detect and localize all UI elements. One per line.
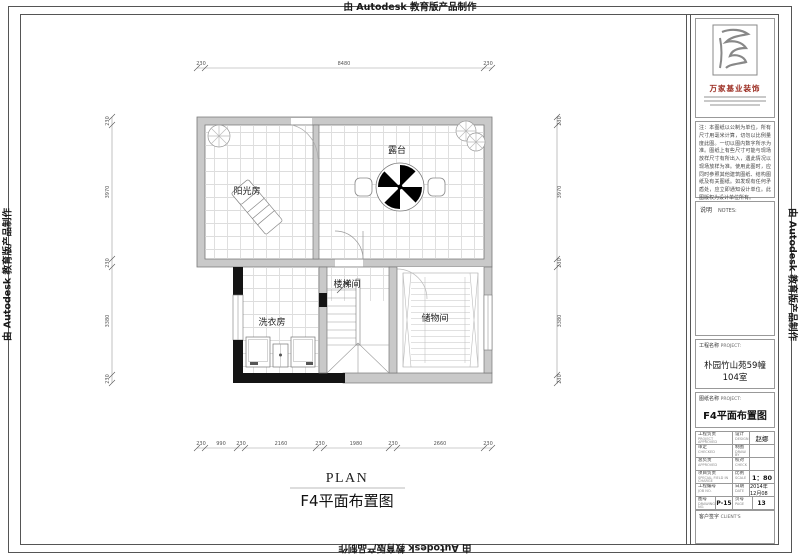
dimension-bottom: 230 990 230 2160 230 1980 230 2660 230 <box>194 441 495 451</box>
plan-title-en: PLAN <box>326 471 369 486</box>
logo-fineprint-line <box>704 96 766 98</box>
laundry-stair-wall-black <box>319 293 327 307</box>
table-row: 总负责APPROVED 校对CHECK <box>696 458 774 471</box>
general-notes-box: 注：本图纸以公制为单位，所有尺寸用毫米计算，切勿以比例量度此图。一切以图内数字所… <box>695 121 775 198</box>
project-label-en: PROJECT: <box>721 344 741 349</box>
cell-sublabel: PROJECT APPROVED <box>698 438 731 445</box>
svg-text:3970: 3970 <box>105 186 111 199</box>
room-label-sunroom: 阳光房 <box>233 185 260 197</box>
cell-sublabel: DRAWING NO. <box>698 503 714 510</box>
terrace-chair <box>428 178 445 196</box>
svg-text:230: 230 <box>388 441 398 447</box>
cell-sublabel: SPECIAL FIELD IN CHARGE <box>698 477 731 484</box>
drawing-number-value: P-15 <box>716 497 733 510</box>
client-label-cn: 客户签字 <box>699 514 719 520</box>
client-label-en: CLIENT'S <box>721 515 741 520</box>
stair-door-opening <box>335 260 363 267</box>
table-row: 图号DRAWING NO. P-15 页号PAGE 13 <box>696 497 774 510</box>
table-row: 工程编号JOB NO. 日期DATE 2014年12月08 <box>696 484 774 497</box>
svg-text:8480: 8480 <box>338 61 351 67</box>
plan-title-cn: F4平面布置图 <box>300 492 393 510</box>
svg-text:230: 230 <box>315 441 325 447</box>
project-label-cn: 工程名称 <box>699 343 719 349</box>
checker-value <box>750 458 774 470</box>
tree-icon <box>208 125 230 147</box>
cell-sublabel: CHECK <box>735 464 748 468</box>
drawing-sheet: 由 Autodesk 教育版产品制作 由 Autodesk 教育版产品制作 由 … <box>0 0 800 559</box>
floor-plan-svg: 露台 阳光房 楼梯间 洗衣房 储物间 230 8480 230 230 3970… <box>85 55 595 520</box>
draftsman-value <box>750 445 774 457</box>
date-value: 2014年12月08 <box>750 484 774 496</box>
autodesk-watermark-bottom: 由 Autodesk 教育版产品制作 <box>305 541 505 554</box>
svg-text:990: 990 <box>216 441 226 447</box>
svg-text:230: 230 <box>196 441 206 447</box>
cell-sublabel: SCALE <box>735 477 748 481</box>
room-label-terrace: 露台 <box>388 144 406 156</box>
sunroom-divider-wall <box>313 125 319 259</box>
designer-value: 赵娜 <box>750 432 774 444</box>
autodesk-watermark-left: 由 Autodesk 教育版产品制作 <box>2 175 15 375</box>
dimension-right: 230 3970 230 3380 230 <box>554 114 563 386</box>
room-label-laundry: 洗衣房 <box>258 316 285 328</box>
svg-text:230: 230 <box>483 61 493 67</box>
logo-fineprint-line <box>704 100 766 102</box>
cell-sublabel: CHECKED <box>698 451 731 455</box>
notes-label-en: NOTES: <box>718 208 737 214</box>
terrace-top-door-opening <box>291 118 312 125</box>
right-wall-window <box>484 295 492 350</box>
svg-text:1980: 1980 <box>350 441 363 447</box>
scale-value: 1：80 <box>750 471 774 483</box>
terrace-chair <box>355 178 372 196</box>
company-brand-text: 万家基业装饰 <box>696 83 774 94</box>
page-number-value: 13 <box>753 497 770 510</box>
table-row: 工程负责PROJECT APPROVED 设计DESIGN 赵娜 <box>696 432 774 445</box>
cell-sublabel: DATE <box>735 490 748 494</box>
svg-text:230: 230 <box>557 374 563 384</box>
cell-sublabel: JOB NO. <box>698 490 731 494</box>
client-signature-box: 客户签字 CLIENT'S <box>695 510 775 544</box>
svg-text:230: 230 <box>105 258 111 268</box>
svg-text:2660: 2660 <box>434 441 447 447</box>
company-logo-box: 万家基业装饰 <box>695 18 775 118</box>
table-row: 审定CHECKED 制图DRAW. BY <box>696 445 774 458</box>
svg-text:230: 230 <box>557 258 563 268</box>
drawing-label-en: PROJECT: <box>721 397 741 402</box>
laundry-stair-wall <box>319 267 327 373</box>
room-label-storage: 储物间 <box>421 312 448 324</box>
svg-text:3380: 3380 <box>557 315 563 328</box>
project-name-value: 朴园竹山苑59幢104室 <box>696 359 774 383</box>
svg-text:2160: 2160 <box>275 441 288 447</box>
table-row: 项目负责SPECIAL FIELD IN CHARGE 比例SCALE 1：80 <box>696 471 774 484</box>
autodesk-watermark-right: 由 Autodesk 教育版产品制作 <box>786 175 799 375</box>
svg-text:230: 230 <box>105 374 111 384</box>
svg-text:3970: 3970 <box>557 186 563 199</box>
project-name-box: 工程名称 PROJECT: 朴园竹山苑59幢104室 <box>695 339 775 389</box>
svg-text:230: 230 <box>236 441 246 447</box>
company-logo-icon <box>712 24 758 76</box>
bottom-wall-black <box>233 373 345 383</box>
logo-fineprint-line <box>710 104 760 106</box>
drawing-label-cn: 图纸名称 <box>699 396 719 402</box>
svg-text:230: 230 <box>483 441 493 447</box>
stair-storage-wall <box>389 267 397 373</box>
drawing-name-value: F4平面布置图 <box>696 407 774 422</box>
notes-box: 说明 NOTES: <box>695 201 775 336</box>
svg-text:230: 230 <box>557 116 563 126</box>
left-wall-black-lower <box>233 340 243 383</box>
left-wall-window <box>233 295 243 340</box>
titleblock-divider-outer <box>686 14 687 544</box>
cell-sublabel: DESIGN <box>735 438 748 442</box>
titleblock-table: 工程负责PROJECT APPROVED 设计DESIGN 赵娜 审定CHECK… <box>695 431 775 510</box>
bottom-wall-gray <box>343 373 492 383</box>
titleblock-divider-inner <box>690 14 691 544</box>
svg-text:230: 230 <box>105 116 111 126</box>
cell-sublabel: PAGE <box>735 503 751 507</box>
general-notes-text: 注：本图纸以公制为单位，所有尺寸用毫米计算，切勿以比例量度此图。一切以图内数字所… <box>696 122 774 206</box>
cell-sublabel: APPROVED <box>698 464 731 468</box>
dimension-top: 230 8480 230 <box>194 61 495 71</box>
notes-label-cn: 说明 <box>700 207 712 214</box>
svg-text:230: 230 <box>196 61 206 67</box>
drawing-name-box: 图纸名称 PROJECT: F4平面布置图 <box>695 392 775 428</box>
svg-text:3380: 3380 <box>105 315 111 328</box>
cell-sublabel: DRAW. BY <box>735 451 748 458</box>
room-label-stairs: 楼梯间 <box>333 278 360 290</box>
dimension-left: 230 3970 230 3380 230 <box>105 114 115 386</box>
autodesk-watermark-top: 由 Autodesk 教育版产品制作 <box>310 1 510 14</box>
left-wall-black-upper <box>233 267 243 295</box>
